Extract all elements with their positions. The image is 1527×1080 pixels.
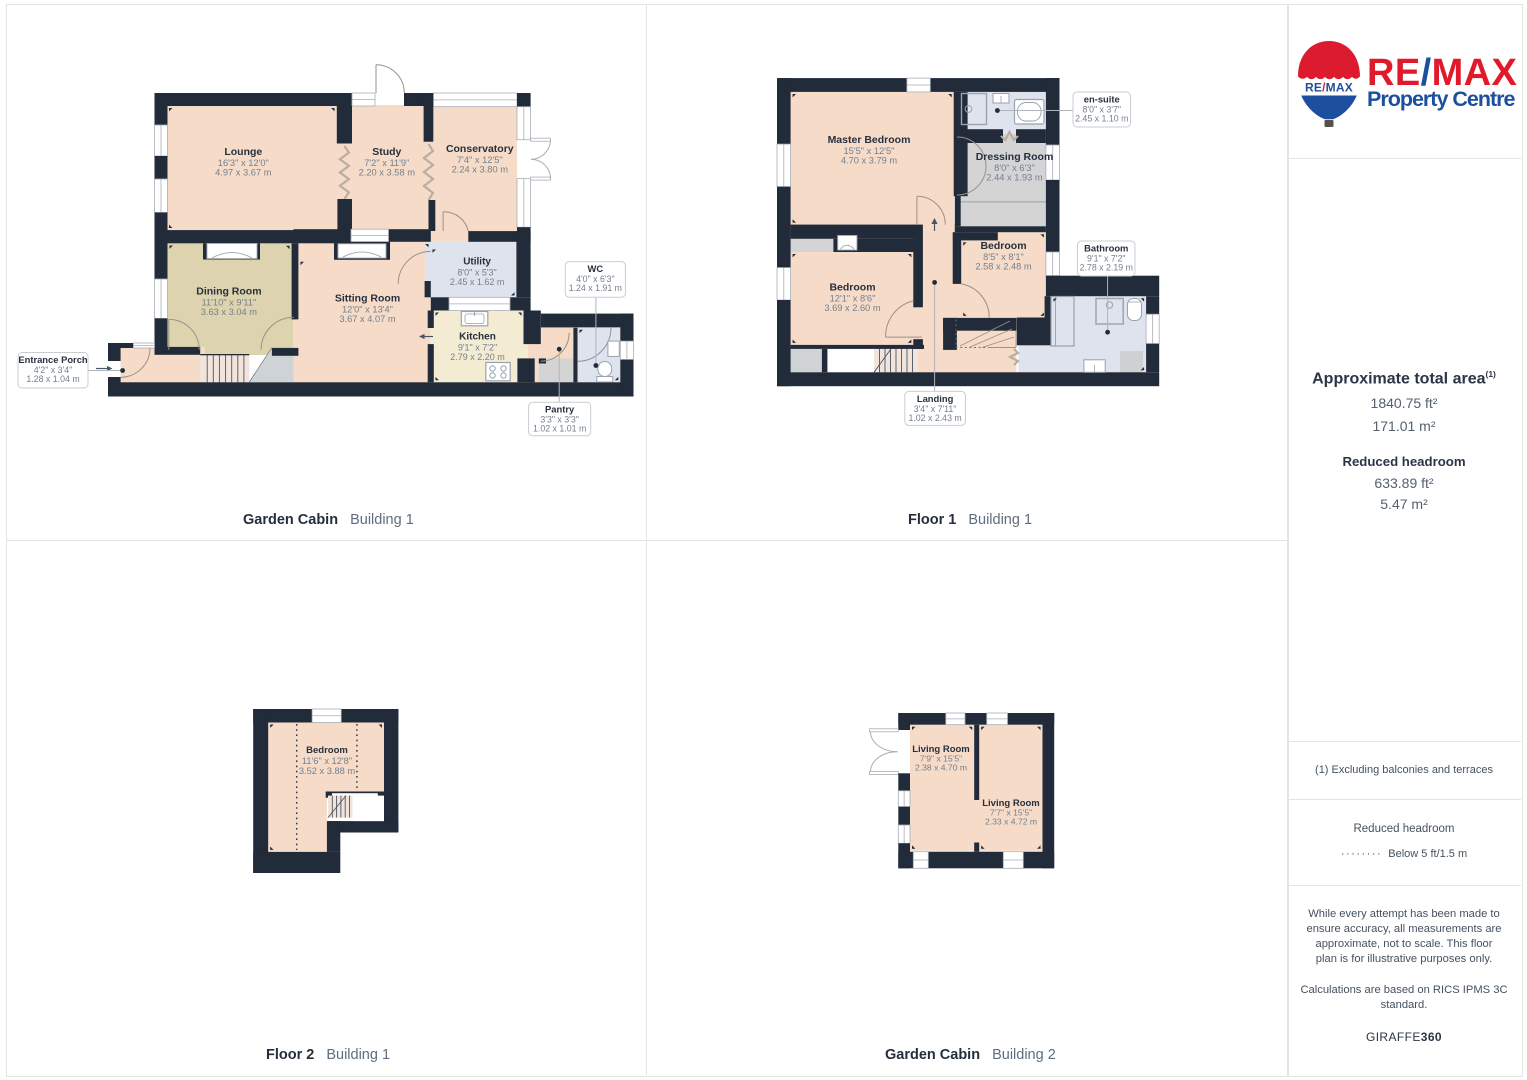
svg-text:Dressing Room: Dressing Room — [976, 151, 1054, 163]
svg-text:15'5" x 12'5": 15'5" x 12'5" — [844, 146, 895, 156]
svg-text:2.33 x 4.72 m: 2.33 x 4.72 m — [985, 816, 1037, 826]
svg-text:Sitting Room: Sitting Room — [335, 293, 400, 305]
svg-text:Pantry: Pantry — [545, 404, 575, 415]
svg-text:12'0" x 13'4": 12'0" x 13'4" — [342, 305, 393, 315]
svg-text:9'1" x 7'2": 9'1" x 7'2" — [458, 343, 497, 353]
svg-text:Kitchen: Kitchen — [459, 332, 496, 343]
svg-text:Landing: Landing — [917, 393, 954, 404]
svg-text:7'4" x 12'5": 7'4" x 12'5" — [457, 155, 503, 165]
svg-text:Entrance Porch: Entrance Porch — [18, 354, 88, 365]
svg-text:2.78 x 2.19 m: 2.78 x 2.19 m — [1080, 263, 1133, 273]
svg-text:Dining Room: Dining Room — [196, 286, 261, 298]
svg-text:12'1" x 8'6": 12'1" x 8'6" — [830, 294, 876, 304]
svg-text:WC: WC — [588, 263, 604, 274]
svg-text:Conservatory: Conservatory — [446, 143, 514, 155]
svg-text:11'10" x 9'11": 11'10" x 9'11" — [202, 298, 257, 308]
svg-text:Bathroom: Bathroom — [1084, 243, 1128, 254]
svg-text:en-suite: en-suite — [1084, 94, 1120, 105]
svg-text:2.79 x 2.20 m: 2.79 x 2.20 m — [450, 352, 505, 362]
svg-text:2.20 x 3.58 m: 2.20 x 3.58 m — [359, 168, 416, 178]
svg-text:Bedroom: Bedroom — [306, 745, 348, 756]
svg-text:2.45 x 1.62 m: 2.45 x 1.62 m — [450, 277, 505, 287]
svg-text:Lounge: Lounge — [224, 146, 262, 158]
svg-text:11'6" x 12'8": 11'6" x 12'8" — [302, 756, 352, 766]
svg-text:2.38 x 4.70 m: 2.38 x 4.70 m — [915, 762, 967, 772]
svg-text:8'5" x 8'1": 8'5" x 8'1" — [983, 252, 1024, 262]
svg-text:1.02 x 2.43 m: 1.02 x 2.43 m — [908, 413, 961, 423]
svg-text:1.02 x 1.01 m: 1.02 x 1.01 m — [533, 424, 586, 434]
svg-text:1.28 x 1.04 m: 1.28 x 1.04 m — [26, 374, 79, 384]
svg-text:2.45 x 1.10 m: 2.45 x 1.10 m — [1075, 114, 1128, 124]
svg-text:8'0" x 6'3": 8'0" x 6'3" — [994, 163, 1035, 173]
svg-text:2.58 x 2.48 m: 2.58 x 2.48 m — [975, 262, 1032, 272]
svg-text:3.67 x 4.07 m: 3.67 x 4.07 m — [339, 314, 396, 324]
svg-text:8'0" x 5'3": 8'0" x 5'3" — [457, 268, 496, 278]
svg-text:1.24 x 1.91 m: 1.24 x 1.91 m — [569, 283, 622, 293]
svg-text:Bedroom: Bedroom — [829, 282, 875, 294]
svg-text:Master Bedroom: Master Bedroom — [828, 134, 911, 146]
svg-text:3.69 x 2.60 m: 3.69 x 2.60 m — [824, 303, 881, 313]
svg-text:3.63 x 3.04 m: 3.63 x 3.04 m — [201, 307, 258, 317]
svg-text:Study: Study — [372, 146, 401, 158]
svg-text:4.70 x 3.79 m: 4.70 x 3.79 m — [841, 156, 898, 166]
svg-text:16'3" x 12'0": 16'3" x 12'0" — [218, 158, 269, 168]
svg-text:Bedroom: Bedroom — [980, 240, 1026, 252]
svg-text:2.44 x 1.93 m: 2.44 x 1.93 m — [986, 173, 1043, 183]
svg-text:4.97 x 3.67 m: 4.97 x 3.67 m — [215, 168, 272, 178]
svg-text:Utility: Utility — [463, 257, 491, 268]
svg-text:2.24 x 3.80 m: 2.24 x 3.80 m — [452, 165, 509, 175]
svg-text:7'2" x 11'9": 7'2" x 11'9" — [364, 158, 409, 168]
svg-text:3.52 x 3.88 m: 3.52 x 3.88 m — [299, 766, 356, 776]
svg-text:RE/MAX: RE/MAX — [1305, 81, 1353, 95]
